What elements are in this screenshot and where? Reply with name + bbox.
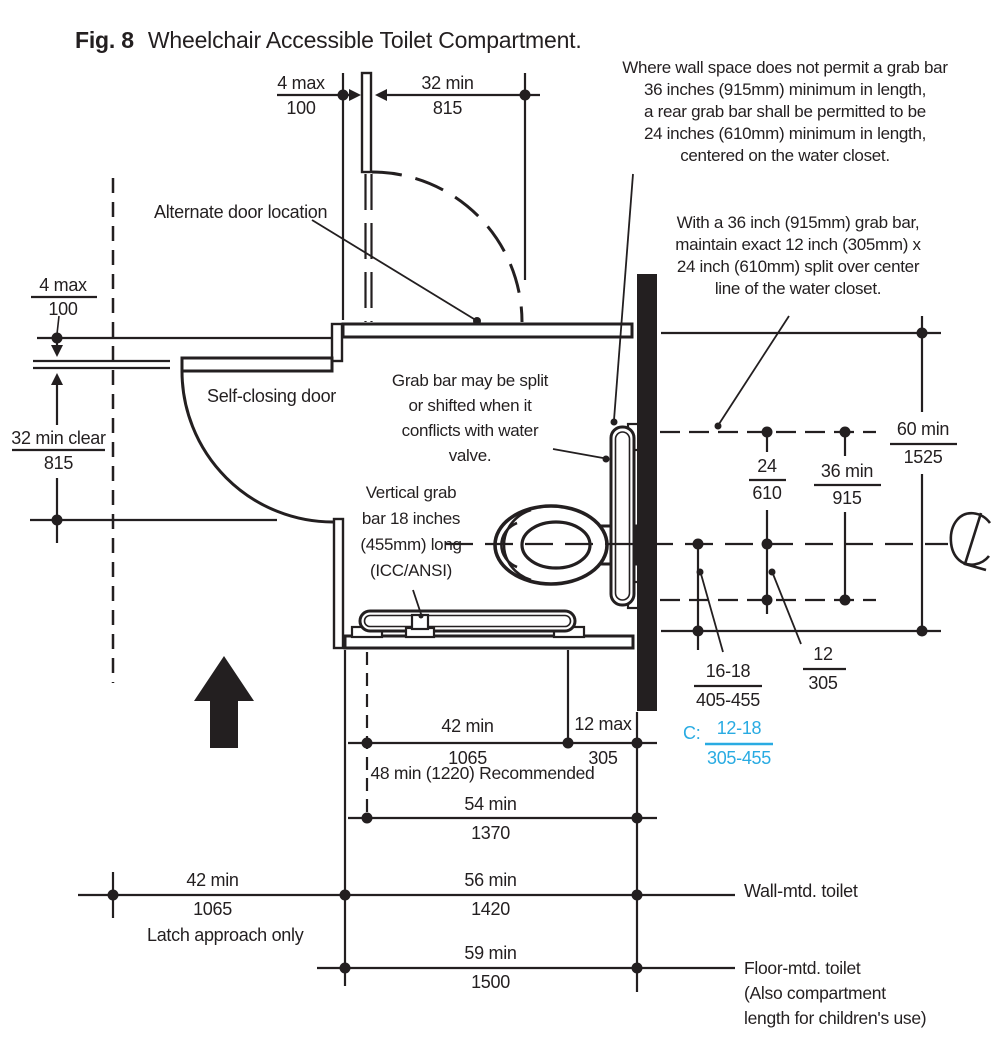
label-floor-mounted: Floor-mtd. toilet (Also compartment leng… [744, 956, 954, 1031]
dim-latch-42-value: 42 min [165, 870, 260, 891]
dim-transfer-12max-value: 12 max [565, 714, 641, 735]
dim-wc-centerline-value: 16-18 [690, 661, 766, 682]
leader-alternate-door [312, 220, 474, 319]
compartment-left-wall [334, 519, 343, 648]
dim-floor-depth-59-value: 59 min [443, 943, 538, 964]
side-grab-bar-tube [360, 611, 575, 631]
dim-door-clear-value: 32 min clear [10, 428, 107, 449]
rear-wall [637, 274, 657, 711]
dim-wall-depth-56-value: 56 min [443, 870, 538, 891]
dim-wall-offset-left-mm: 100 [30, 299, 96, 320]
rear-grab-bar-tube [611, 427, 634, 605]
centerline-symbol-icon [951, 513, 990, 570]
dim-door-clear-mm: 815 [10, 453, 107, 474]
dim-floor-depth-59-mm: 1500 [443, 972, 538, 993]
door-jamb [332, 324, 342, 361]
self-closing-door-leaf [182, 358, 332, 371]
side-partition-lines [33, 361, 170, 368]
alternate-door-swing-arc [372, 172, 522, 322]
dim-latch-42-mm: 1065 [165, 899, 260, 920]
leader-shift-note [553, 449, 603, 458]
note-rear-grab-bar: Where wall space does not permit a grab … [570, 57, 1000, 167]
page-title: Fig. 8Wheelchair Accessible Toilet Compa… [75, 9, 582, 51]
compartment-bottom-wall [345, 636, 633, 648]
front-wall-top-segment [362, 73, 371, 172]
side-grab-bar [352, 611, 584, 637]
dim-depth-54-mm: 1370 [443, 823, 538, 844]
dim-door-width-value: 32 min [400, 73, 495, 94]
figure-number: Fig. 8 [75, 27, 134, 53]
note-recommended: 48 min (1220) Recommended [370, 763, 595, 784]
rear-grab-bar [611, 424, 639, 608]
dim-rear-grab-36-value: 36 min [812, 461, 882, 482]
dim-compartment-width-mm: 1525 [888, 447, 958, 468]
dim-door-offset-top-mm: 100 [273, 98, 329, 119]
figure-8-diagram: Fig. 8Wheelchair Accessible Toilet Compa… [0, 0, 1000, 1041]
dim-wc-centerline-mm: 405-455 [690, 690, 766, 711]
figure-title: Wheelchair Accessible Toilet Compartment… [148, 27, 582, 53]
approach-arrow-icon [194, 656, 254, 748]
dim-rear-split-24-mm: 610 [747, 483, 787, 504]
note-self-closing-door: Self-closing door [207, 386, 336, 407]
dim-grab-beyond-12-value: 12 [800, 644, 846, 665]
dim-grab-beyond-12-mm: 305 [800, 673, 846, 694]
dim-children-centerline-value: 12-18 [704, 718, 774, 739]
dim-rear-grab-36-mm: 915 [812, 488, 882, 509]
note-vertical-grab-bar: Vertical grab bar 18 inches (455mm) long… [352, 480, 470, 584]
dim-door-width-mm: 815 [400, 98, 495, 119]
leader-16-18 [701, 574, 723, 652]
note-alternate-door: Alternate door location [154, 202, 327, 223]
leader-12 [773, 574, 801, 644]
dim-rear-split-24-value: 24 [747, 456, 787, 477]
dim-wall-offset-left-value: 4 max [30, 275, 96, 296]
dim-door-offset-top-value: 4 max [273, 73, 329, 94]
alternate-door-leaf [366, 174, 372, 322]
dim-compartment-width-value: 60 min [888, 419, 958, 440]
note-latch-approach: Latch approach only [147, 925, 303, 946]
dim-children-centerline-mm: 305-455 [704, 748, 774, 769]
note-grab-bar-shift: Grab bar may be split or shifted when it… [380, 368, 560, 468]
note-split-grab-bar: With a 36 inch (915mm) grab bar, maintai… [650, 212, 946, 300]
dim-depth-54-value: 54 min [443, 794, 538, 815]
compartment-top-wall [343, 324, 632, 337]
leader-rear-grab-note [614, 174, 633, 420]
dim-clearance-42-value: 42 min [420, 716, 515, 737]
dim-children-centerline-prefix: C: [683, 723, 700, 744]
dim-wall-depth-56-mm: 1420 [443, 899, 538, 920]
label-wall-mounted: Wall-mtd. toilet [744, 881, 858, 902]
